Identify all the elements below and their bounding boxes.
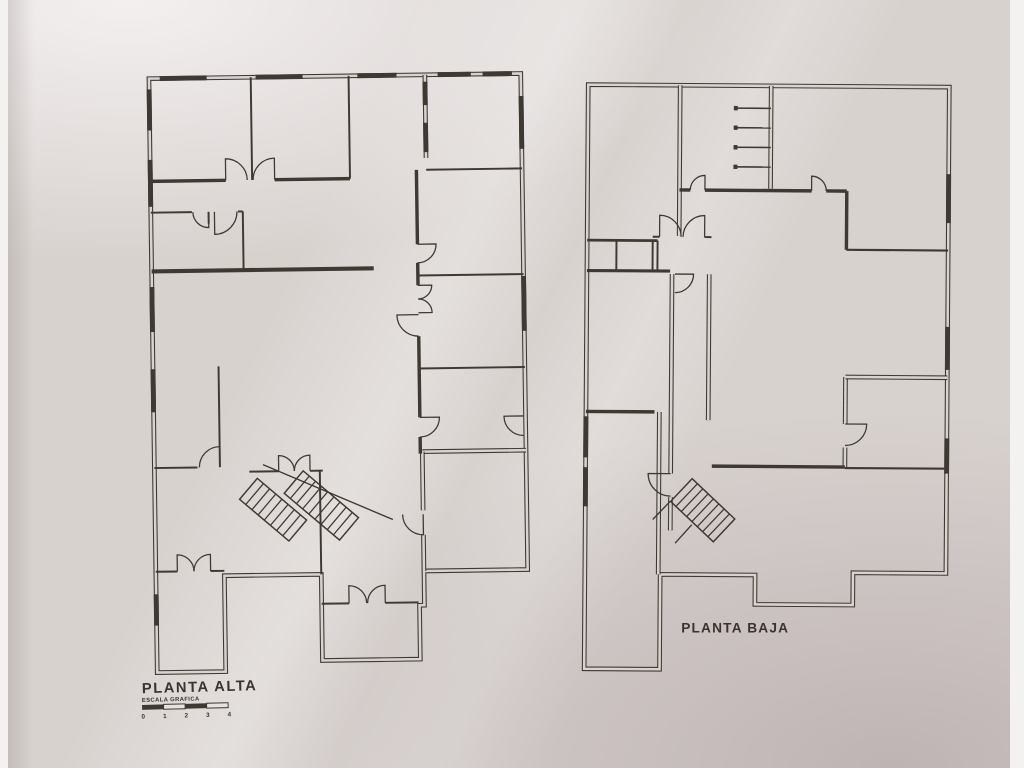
scale-tick: 1 [163,713,167,720]
plans-svg: PLANTA ALTA ESCALA GRAFICA 0 1 2 3 4 PLA… [8,0,1010,768]
door-swing-arc [403,514,424,535]
door-swing-arc [420,417,440,437]
floor-plan-sheet-photo: PLANTA ALTA ESCALA GRAFICA 0 1 2 3 4 PLA… [8,0,1010,768]
door-swing-arc [845,424,867,446]
planta-alta-label: PLANTA ALTA [142,678,258,697]
planta-alta-floor-plan [149,73,529,672]
scale-bar-segment [185,703,207,708]
door-swing-arc [690,175,705,190]
door-swing-arc [367,585,385,603]
scale-tick: 3 [206,712,210,719]
door-swing-arc [278,455,294,471]
door-swing-arc [418,299,432,313]
door-swing-arc [418,285,432,299]
door-swing-arc [675,274,694,293]
scale-bar-segment [207,703,229,708]
door-swing-arc [177,555,194,572]
door-swing-arc [683,215,705,237]
door-swing-arc [417,244,436,263]
staircase [671,479,735,542]
scale-bar: ESCALA GRAFICA 0 1 2 3 4 [141,696,232,721]
scale-bar-title: ESCALA GRAFICA [142,697,200,705]
door-swing-arc [812,176,827,191]
door-swing-arc [397,315,419,337]
planta-baja-label: PLANTA BAJA [681,621,789,636]
door-swing-arc [199,447,220,468]
door-swing-arc [349,585,367,603]
door-swing-arc [504,416,524,436]
door-swing-arc [225,159,247,181]
scale-bar-segment [142,704,164,709]
door-swing-arc [253,158,275,180]
scale-tick: 2 [184,712,188,719]
planta-baja-floor-plan [584,85,949,672]
scale-tick: 0 [141,714,145,721]
scale-tick: 4 [228,711,232,718]
door-swing-arc [194,554,211,571]
door-swing-arc [294,455,310,471]
door-swing-arc [193,212,209,228]
staircase [240,478,307,541]
scale-bar-segment [164,704,186,709]
door-swing-arc [214,212,237,235]
